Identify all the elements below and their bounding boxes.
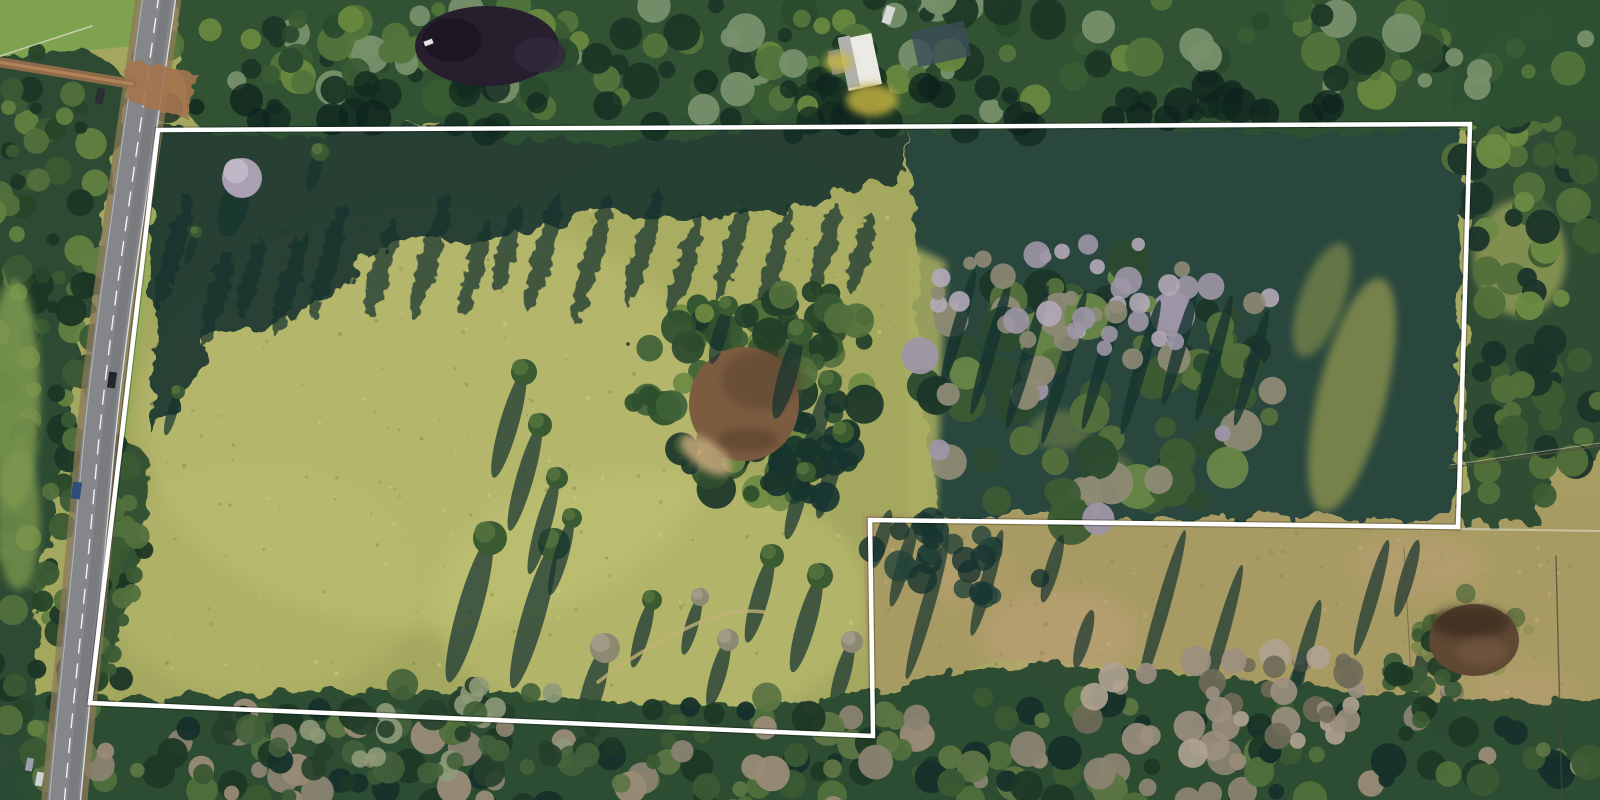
pasture-texture	[1143, 613, 1148, 618]
grass-texture	[224, 556, 226, 558]
scattered-trees	[788, 319, 804, 335]
canopy-top-belt-dark	[230, 83, 263, 116]
yellow-tree	[846, 84, 898, 116]
grass-texture	[167, 462, 169, 464]
canopy-top-belt	[1082, 10, 1115, 43]
canopy-right-out	[1532, 143, 1556, 167]
tree-cluster-right	[982, 486, 1011, 515]
pond-ring-trees	[743, 485, 760, 502]
canopy-bottom-mixed	[429, 763, 443, 777]
grass-texture	[392, 522, 396, 526]
tree-cluster-right	[937, 383, 960, 406]
canopy-bottom-mixed	[519, 759, 535, 775]
canopy-top-belt	[1390, 59, 1412, 81]
grass-texture	[608, 574, 611, 577]
grass-texture	[564, 359, 566, 361]
grass-texture	[530, 399, 534, 403]
canopy-bottom-belt	[784, 743, 808, 767]
pond-br-trees	[1393, 665, 1414, 686]
aerial-photo-stage	[0, 0, 1600, 800]
pasture-texture	[1497, 546, 1499, 548]
grass-texture	[232, 458, 235, 461]
grass-texture	[610, 684, 613, 687]
canopy-bottom-belt	[1503, 720, 1528, 745]
canopy-top-belt	[410, 6, 431, 27]
notch-corner-shade	[970, 545, 996, 571]
aerial-photo	[0, 0, 1600, 800]
pasture-texture	[1138, 621, 1140, 623]
canopy-top-belt	[1059, 63, 1088, 92]
pasture-texture	[891, 548, 895, 552]
grass-texture	[465, 383, 469, 387]
grass-texture	[605, 556, 608, 559]
pasture-texture	[1241, 627, 1244, 630]
canopy-bottom-mixed	[235, 714, 265, 744]
canopy-top-belt	[1311, 4, 1334, 27]
grass-texture	[637, 474, 641, 478]
grass-texture	[465, 328, 468, 331]
pond-ne-trees	[734, 304, 758, 328]
canopy-left-trees	[27, 660, 46, 679]
grass-texture	[379, 481, 382, 484]
grass-texture	[527, 433, 529, 435]
canopy-bottom-belt	[937, 769, 965, 797]
canopy-left-trees	[52, 271, 66, 285]
grass-texture	[334, 498, 337, 501]
silver-canopy-row	[1097, 341, 1112, 356]
pasture-texture	[1285, 532, 1287, 534]
grass-texture	[450, 532, 453, 535]
canopy-bottom-mixed	[377, 721, 394, 738]
pasture-texture	[1494, 532, 1497, 535]
canopy-top-belt	[721, 27, 741, 47]
scattered-trees	[312, 143, 323, 154]
grass-texture	[403, 537, 405, 539]
canopy-left-trees	[27, 720, 44, 737]
grass-texture	[719, 247, 721, 249]
pasture-texture	[1132, 572, 1135, 575]
pasture-texture	[1103, 599, 1107, 603]
canopy-top-belt	[1464, 73, 1491, 100]
canopy-left-trees	[32, 590, 53, 611]
grass-texture	[416, 611, 418, 613]
grass-texture	[503, 322, 507, 326]
canopy-bottom-belt	[1436, 761, 1462, 787]
grass-texture	[387, 427, 389, 429]
pasture-texture	[1323, 599, 1325, 601]
canopy-top-belt	[321, 76, 349, 104]
canopy-bottom-belt	[1084, 758, 1116, 790]
canopy-top-belt	[1505, 39, 1525, 59]
canopy-bottom-gray	[1098, 662, 1128, 692]
canopy-bottom-belt	[1309, 747, 1325, 763]
canopy-left-trees	[61, 412, 77, 428]
canopy-right-out	[1505, 209, 1523, 227]
grass-texture	[279, 508, 281, 510]
pond-br-trees	[1412, 711, 1429, 728]
canopy-top-belt	[720, 72, 754, 106]
grass-texture	[887, 608, 890, 611]
silver-canopy-row	[1067, 322, 1084, 339]
scattered-trees	[833, 421, 847, 435]
tree-cluster-right	[902, 337, 939, 374]
canopy-right-out	[1515, 291, 1544, 320]
pasture-texture	[1169, 610, 1173, 614]
canopy-top-belt	[999, 45, 1016, 62]
canopy-top-belt	[663, 14, 700, 51]
silver-canopy-row	[1129, 293, 1150, 314]
grass-texture	[362, 398, 365, 401]
grass-texture	[755, 652, 758, 655]
canopy-top-belt	[1085, 50, 1112, 77]
scattered-trees	[692, 588, 703, 599]
canopy-top-belt	[288, 10, 307, 29]
grass-texture	[745, 535, 748, 538]
pasture-texture	[1043, 622, 1048, 627]
pasture-texture	[1422, 562, 1424, 564]
grass-texture	[320, 615, 322, 617]
pond-ne-trees	[839, 303, 874, 338]
scattered-trees	[808, 563, 824, 579]
canopy-top-belt-dark	[694, 70, 718, 94]
canopy-right-out	[1553, 290, 1570, 307]
grass-texture	[504, 337, 506, 339]
grass-texture	[227, 554, 229, 556]
pasture-texture	[1517, 570, 1521, 574]
grass-texture	[590, 210, 593, 213]
pasture-texture	[1444, 606, 1446, 608]
canopy-top-belt	[610, 18, 642, 50]
pasture-texture	[1535, 596, 1537, 598]
grass-texture	[469, 564, 471, 566]
grass-texture	[171, 667, 173, 669]
canopy-right-out	[1508, 371, 1535, 398]
pasture-texture	[1526, 573, 1528, 575]
canopy-top-belt	[1577, 30, 1594, 47]
pasture-texture	[1036, 550, 1038, 552]
canopy-bottom-gray	[1206, 686, 1220, 700]
silver-canopy-row	[963, 257, 976, 270]
yellow-tree	[824, 52, 852, 72]
grass-texture	[490, 593, 494, 597]
tree-cluster-right	[1260, 408, 1278, 426]
silver-canopy-row	[932, 268, 951, 287]
pond-br-sedge	[1456, 584, 1476, 604]
scattered-trees	[512, 359, 528, 375]
pasture-texture	[1072, 630, 1075, 633]
canopy-bottom-gray	[1318, 706, 1335, 723]
tree-cluster-right	[1009, 426, 1038, 455]
pasture-texture	[1297, 630, 1299, 632]
canopy-left-trees	[6, 145, 19, 158]
canopy-bottom-gray	[1263, 656, 1286, 679]
pasture-texture	[1560, 683, 1563, 686]
canopy-right-out	[1481, 341, 1507, 367]
grass-texture	[318, 421, 321, 424]
canopy-bottom-mixed	[455, 726, 471, 742]
canopy-top-belt	[1301, 32, 1340, 71]
canopy-left-trees	[4, 255, 33, 284]
grass-texture	[487, 258, 490, 261]
canopy-bottom-belt	[995, 706, 1019, 730]
canopy-bottom-belt	[938, 745, 962, 769]
canopy-right-out	[1526, 210, 1560, 244]
pasture-texture	[998, 572, 1002, 576]
livestock-dots	[288, 244, 292, 248]
canopy-right-out	[1554, 131, 1576, 153]
grass-texture	[231, 442, 234, 445]
canopy-left-trees	[47, 233, 60, 246]
canopy-top-belt-dark	[1252, 99, 1271, 118]
canopy-top-belt	[813, 18, 830, 35]
scattered-trees	[797, 462, 809, 474]
grass-texture	[335, 671, 339, 675]
pasture-texture	[1165, 545, 1168, 548]
canopy-left-trees	[48, 385, 66, 403]
silver-canopy-row	[1174, 261, 1190, 277]
grass-texture	[295, 318, 298, 321]
canopy-top-belt	[1382, 14, 1421, 53]
grass-texture	[200, 434, 204, 438]
grass-texture	[207, 607, 211, 611]
grass-texture	[679, 601, 682, 604]
canopy-bottom-belt	[904, 705, 930, 731]
pasture-texture	[1079, 581, 1082, 584]
pasture-texture	[1053, 594, 1056, 597]
pasture-texture	[994, 662, 998, 666]
canopy-top-belt	[1252, 12, 1270, 30]
canopy-bottom-mixed	[211, 717, 239, 745]
pasture-texture	[1110, 559, 1114, 563]
grass-texture	[622, 231, 624, 233]
canopy-top-belt	[658, 61, 675, 78]
notch-corner-shade	[907, 564, 937, 594]
canopy-left-trees	[0, 78, 23, 101]
grass-texture	[220, 588, 222, 590]
canopy-bottom-belt	[693, 773, 721, 800]
canopy-bottom-gray	[1221, 648, 1246, 673]
pasture-texture	[1535, 618, 1540, 623]
canopy-left-trees	[56, 295, 87, 326]
pasture-texture	[1374, 533, 1376, 535]
canopy-bottom-belt	[97, 743, 114, 760]
canopy-top-belt-dark	[780, 80, 798, 98]
canopy-bottom-belt	[612, 774, 631, 793]
canopy-left-trees	[24, 128, 49, 153]
canopy-left-trees	[19, 196, 37, 214]
grass-texture	[370, 513, 372, 515]
canopy-top-belt	[199, 18, 222, 41]
grass-texture	[679, 605, 683, 609]
pond-ring-trees	[661, 310, 696, 345]
notch-corner-shade	[922, 528, 944, 550]
pasture-texture	[1320, 566, 1323, 569]
livestock-dots	[626, 342, 630, 346]
canopy-right-out	[1514, 192, 1534, 212]
canopy-roadside	[126, 566, 143, 583]
grass-texture	[877, 330, 881, 334]
grass-texture	[557, 617, 560, 620]
scattered-trees	[529, 413, 544, 428]
tree-cluster-right	[1075, 436, 1119, 480]
canopy-bottom-gray	[1136, 663, 1157, 684]
scattered-trees	[718, 629, 732, 643]
grass-texture	[580, 530, 583, 533]
pasture-texture	[1403, 640, 1405, 642]
grass-texture	[659, 500, 663, 504]
canopy-left-trees	[35, 319, 50, 334]
canopy-top-belt	[1030, 4, 1066, 40]
grass-texture	[870, 370, 873, 373]
pasture-texture	[1505, 690, 1509, 694]
canopy-bottom-mixed	[387, 669, 419, 701]
grass-texture	[547, 459, 550, 462]
livestock-dots	[281, 230, 285, 234]
canopy-right-out	[1530, 347, 1558, 375]
grass-texture	[443, 567, 445, 569]
silver-canopy-row	[1115, 267, 1143, 295]
pasture-texture	[1532, 691, 1535, 694]
silver-canopy-row	[1024, 241, 1051, 268]
canopy-top-belt	[1445, 48, 1463, 66]
canopy-roadside	[116, 614, 129, 627]
tree-cluster-right	[929, 439, 950, 460]
canopy-bottom-belt	[1047, 736, 1081, 770]
grass-texture	[625, 488, 627, 490]
notch-corner-shade	[1031, 569, 1050, 588]
pasture-texture	[1538, 563, 1542, 567]
pond-br-rim	[1430, 606, 1510, 638]
grass-texture	[885, 216, 889, 220]
grass-texture	[568, 465, 570, 467]
canopy-bottom-mixed	[268, 737, 288, 757]
grass-texture	[376, 543, 380, 547]
canopy-bottom-belt	[1144, 759, 1161, 776]
canopy-bottom-belt	[646, 755, 661, 770]
pond-top-left-light	[514, 37, 566, 73]
pasture-texture	[1534, 655, 1537, 658]
pasture-texture	[1359, 546, 1363, 550]
canopy-top-belt-dark	[1192, 70, 1226, 104]
pasture-texture	[1455, 578, 1459, 582]
canopy-roadside	[123, 584, 141, 602]
pasture-texture	[1481, 574, 1483, 576]
tree-cluster-right	[1215, 426, 1231, 442]
canopy-right-out	[1476, 134, 1511, 169]
grass-texture	[572, 486, 576, 490]
pasture-texture	[1045, 658, 1049, 662]
silver-canopy-row	[1122, 348, 1143, 369]
grass-texture	[684, 604, 686, 606]
pasture-texture	[1548, 592, 1552, 596]
pasture-texture	[883, 675, 887, 679]
tree-cluster-right	[1155, 417, 1176, 438]
pasture-texture	[1496, 564, 1498, 566]
grass-texture	[557, 589, 561, 593]
canopy-bottom-gray	[1290, 733, 1306, 749]
pond-ring-trees	[845, 385, 884, 424]
pasture-texture	[1390, 568, 1392, 570]
silver-canopy-row	[1158, 274, 1180, 296]
grass-texture	[501, 290, 504, 293]
canopy-left-trees	[9, 226, 25, 242]
grass-texture	[849, 620, 853, 624]
pasture-texture	[1193, 584, 1196, 587]
grass-texture	[439, 420, 441, 422]
pasture-texture	[1269, 550, 1274, 555]
canopy-top-belt	[643, 33, 668, 58]
grass-texture	[833, 276, 836, 279]
canopy-bottom-mixed	[367, 747, 386, 766]
pasture-texture	[919, 595, 922, 598]
pasture-texture	[1009, 604, 1012, 607]
canopy-bottom-belt	[704, 703, 725, 724]
canopy-top-belt	[1347, 36, 1386, 75]
notch-corner-shade	[972, 526, 992, 546]
canopy-top-belt	[338, 7, 364, 33]
pond-ring-trees	[636, 335, 663, 362]
canopy-right-out	[1498, 415, 1529, 446]
canopy-bottom-mixed	[447, 752, 464, 769]
grass-texture	[512, 630, 516, 634]
pasture-texture	[1039, 651, 1044, 656]
grass-texture	[468, 438, 470, 440]
grass-texture	[692, 539, 694, 541]
canopy-bottom-belt	[1229, 753, 1246, 770]
grass-texture	[601, 477, 604, 480]
tree-cluster-right	[1144, 465, 1173, 494]
silver-canopy-row	[990, 263, 1016, 289]
scattered-trees	[474, 522, 495, 543]
pasture-texture	[1196, 555, 1198, 557]
canopy-roadside	[104, 645, 122, 663]
canopy-top-belt	[241, 29, 262, 50]
pasture-texture	[1107, 642, 1111, 646]
canopy-bottom-mixed	[352, 750, 369, 767]
pasture-texture	[1149, 560, 1152, 563]
canopy-bottom-mixed	[478, 735, 497, 754]
grass-texture	[608, 391, 611, 394]
canopy-top-belt	[1551, 51, 1585, 85]
grass-texture	[263, 347, 265, 349]
pasture-texture	[1533, 566, 1535, 568]
grass-texture	[182, 464, 186, 468]
silver-canopy-row	[1036, 301, 1062, 327]
canopy-bottom-belt	[177, 717, 201, 741]
pond-center-dark	[718, 428, 778, 452]
canopy-bottom-gray	[1264, 723, 1291, 750]
silver-canopy-row	[931, 286, 945, 300]
grass-texture	[174, 538, 177, 541]
canopy-bottom-belt	[1378, 771, 1394, 787]
grass-texture	[219, 503, 222, 506]
pasture-texture	[1148, 621, 1150, 623]
pasture-texture	[1566, 665, 1569, 668]
grass-texture	[301, 383, 303, 385]
pasture-texture	[903, 660, 905, 662]
grass-texture	[889, 327, 891, 329]
canopy-bottom-belt	[157, 738, 188, 769]
livestock-dots	[294, 236, 298, 240]
silver-canopy-row	[1078, 234, 1098, 254]
grass-texture	[591, 219, 595, 223]
grass-texture	[526, 414, 528, 416]
pasture-texture	[884, 580, 888, 584]
tree-cluster-right	[1082, 503, 1114, 535]
grass-texture	[388, 486, 391, 489]
grass-texture	[394, 488, 396, 490]
grass-texture	[268, 497, 271, 500]
